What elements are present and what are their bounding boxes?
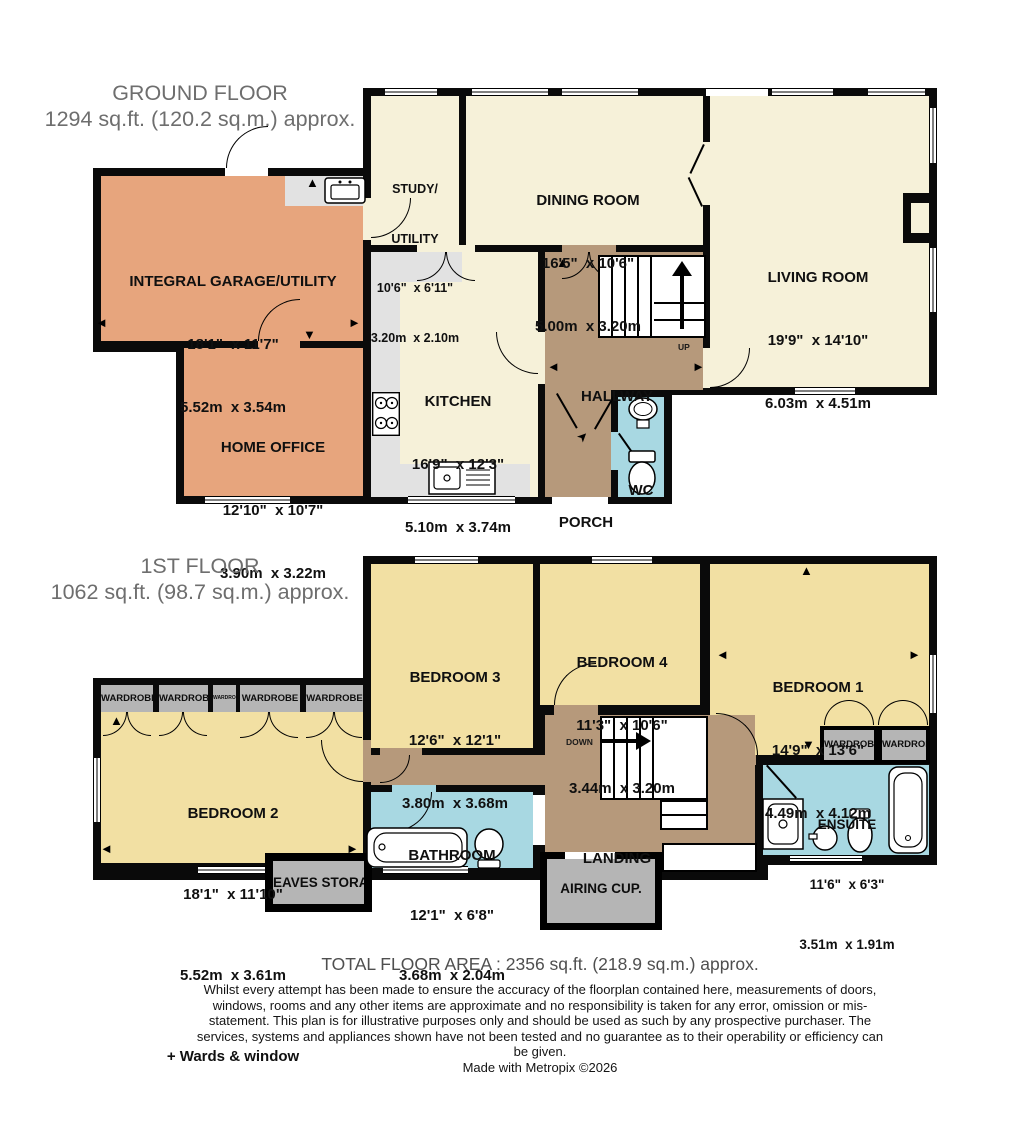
window <box>868 88 925 96</box>
door-arc <box>321 740 363 782</box>
wardrobe-door-arc <box>903 700 928 725</box>
floorplan-page: { "ground_floor": { "title": "GROUND FLO… <box>0 0 1026 1080</box>
room-name: STUDY/ <box>371 181 459 198</box>
door-leaf <box>766 765 797 799</box>
bedroom1-label: BEDROOM 1 14'9" x 13'6" 4.49m x 4.12m <box>765 635 871 866</box>
room-name: BEDROOM 1 <box>765 677 871 698</box>
room-name: HALLWAY <box>581 386 653 407</box>
door-opening <box>533 795 545 845</box>
wall <box>363 556 545 880</box>
wardrobe-door-arc <box>127 712 151 736</box>
ground-floor-title: GROUND FLOOR 1294 sq.ft. (120.2 sq.m.) a… <box>30 80 370 132</box>
room-dim-metric: 3.80m x 3.68m <box>402 793 508 814</box>
room-dim-imperial: 11'3" x 10'6" <box>569 715 675 736</box>
study-label: STUDY/ UTILITY 10'6" x 6'11" 3.20m x 2.1… <box>371 148 459 379</box>
room-name: BEDROOM 4 <box>569 652 675 673</box>
room-landing <box>545 715 755 863</box>
floor-title: GROUND FLOOR <box>30 80 370 106</box>
room-dim-metric: 3.20m x 2.10m <box>371 330 459 347</box>
wall <box>93 678 371 880</box>
wall <box>707 556 937 865</box>
window <box>93 758 101 822</box>
disclaimer: Whilst every attempt has been made to en… <box>188 982 892 1076</box>
window <box>383 866 468 874</box>
wardrobe-label: WARDROBE <box>824 731 874 759</box>
window <box>790 855 862 862</box>
up-label: UP <box>678 342 690 352</box>
opening <box>706 88 768 96</box>
floor-area: 1294 sq.ft. (120.2 sq.m.) approx. <box>30 106 370 132</box>
door-arc <box>226 126 268 168</box>
room-bathroom <box>371 792 533 868</box>
down-label: DOWN <box>566 737 593 747</box>
window <box>772 88 833 96</box>
bath-icon <box>888 766 928 854</box>
direction-marker: ▲ <box>306 176 319 189</box>
home-office-label: HOME OFFICE 12'10" x 10'7" 3.90m x 3.22m <box>220 395 326 626</box>
room-bedroom3 <box>371 564 533 748</box>
eaves-storage-label: EAVES STORAGE <box>273 861 364 904</box>
airing-cupboard-box <box>540 852 662 930</box>
window <box>929 108 937 163</box>
bedroom4-label: BEDROOM 4 11'3" x 10'6" 3.44m x 3.20m <box>569 610 675 841</box>
landing-label: LANDING <box>583 806 651 911</box>
room-dim-imperial: 12'10" x 10'7" <box>220 500 326 521</box>
wardrobe-door-arc <box>334 712 362 738</box>
direction-marker: ▲ <box>800 564 813 577</box>
stair-treads <box>602 718 660 798</box>
room-dim-imperial: 16'9" x 12'3" <box>405 454 511 475</box>
bedroom3-label: BEDROOM 3 12'6" x 12'1" 3.80m x 3.68m <box>402 625 508 856</box>
room-dim-imperial: 12'6" x 12'1" <box>402 730 508 751</box>
hallway-label: HALLWAY <box>581 344 653 449</box>
wardrobe-door-arc <box>849 700 874 725</box>
room-dim-metric: 4.49m x 4.12m <box>765 803 871 824</box>
door-arc <box>554 663 596 705</box>
room-bedroom4 <box>540 564 700 705</box>
stair-arrow-head <box>672 261 692 276</box>
room-dim-metric: 3.51m x 1.91m <box>799 935 894 955</box>
stair-landing <box>654 302 704 336</box>
direction-marker: ◄ <box>716 648 729 661</box>
sink-icon <box>808 820 840 854</box>
wardrobe-box <box>878 726 930 764</box>
stair-arrow-stem <box>602 739 636 743</box>
sink-icon <box>324 177 366 204</box>
wardrobe-label: WARDROBE <box>159 685 208 712</box>
wardrobe-divider <box>208 685 213 712</box>
room-dim-imperial: 14'9" x 13'6" <box>765 740 871 761</box>
wc-label: WC <box>629 438 654 543</box>
room-name: LANDING <box>583 848 651 869</box>
door-opening <box>380 748 422 755</box>
ground-floor-plan: GROUND FLOOR 1294 sq.ft. (120.2 sq.m.) a… <box>0 0 1026 540</box>
eaves-storage-box <box>265 853 372 912</box>
total-floor-area: TOTAL FLOOR AREA : 2356 sq.ft. (218.9 sq… <box>54 954 1026 975</box>
stair-arrow-stem <box>680 273 684 329</box>
disclaimer-text: Whilst every attempt has been made to en… <box>188 982 892 1060</box>
room-name: PORCH <box>559 512 613 533</box>
door-opening <box>363 198 371 240</box>
toilet-icon <box>844 808 876 854</box>
wall <box>540 556 768 880</box>
door-opening <box>703 142 710 205</box>
room-name: DINING ROOM <box>535 190 641 211</box>
door-opening <box>554 705 598 715</box>
room-dim-metric: 3.90m x 3.22m <box>220 563 326 584</box>
wardrobe-strip <box>101 685 363 712</box>
room-name: LIVING ROOM <box>765 267 871 288</box>
fireplace-recess <box>911 203 929 233</box>
room-name: HOME OFFICE <box>220 437 326 458</box>
living-label: LIVING ROOM 19'9" x 14'10" 6.03m x 4.51m <box>765 225 871 456</box>
direction-marker: ▲ <box>110 714 123 727</box>
room-dim-metric: 3.44m x 3.20m <box>569 778 675 799</box>
wardrobe-divider <box>153 685 159 712</box>
door-arc <box>380 755 410 783</box>
wardrobe-door-arc <box>103 712 127 736</box>
room-name: BATHROOM <box>399 846 505 866</box>
airing-door-opening <box>565 852 615 859</box>
direction-marker: ▼ <box>802 738 815 751</box>
hob-icon <box>372 392 400 436</box>
room-bedroom1 <box>710 564 929 755</box>
window <box>198 866 268 874</box>
wardrobe-door-arc <box>306 712 334 738</box>
wardrobe-label: WARDROBE <box>882 731 926 759</box>
corridor <box>371 755 545 785</box>
room-dim-imperial: 18'1" x 11'10" <box>167 881 299 908</box>
direction-marker: ► <box>346 842 359 855</box>
room-dim-imperial: 10'6" x 6'11" <box>371 280 459 297</box>
wardrobe-door-arc <box>240 712 269 738</box>
wardrobe-box <box>820 726 878 764</box>
room-dim-imperial: 11'6" x 6'3" <box>799 875 894 895</box>
room-dim-imperial: 19'9" x 14'10" <box>765 330 871 351</box>
stairwell-box <box>662 843 757 872</box>
wardrobe-door-arc <box>824 700 849 725</box>
bath-icon <box>366 827 468 868</box>
room-name: WC <box>629 480 654 501</box>
stairs-lower <box>660 800 708 830</box>
airing-cupboard-label: AIRING CUP. <box>548 859 654 919</box>
door-arc <box>716 713 758 755</box>
window <box>929 248 937 312</box>
direction-marker: ► <box>908 648 921 661</box>
wardrobe-label: WARDROBE <box>213 685 236 712</box>
door-opening <box>363 740 371 782</box>
wardrobe-label: WARDROBE <box>306 685 363 712</box>
wardrobe-door-arc <box>269 712 298 738</box>
room-dim-imperial: 16'5" x 10'6" <box>535 253 641 274</box>
wardrobe-door-arc <box>183 712 207 736</box>
room-name: BEDROOM 3 <box>402 667 508 688</box>
stair-arrow-head <box>636 732 651 750</box>
direction-marker: ► <box>348 316 361 329</box>
garage-door-opening <box>225 168 268 176</box>
direction-marker: ◄ <box>95 316 108 329</box>
door-opening <box>392 785 436 792</box>
shower-icon <box>762 798 804 850</box>
window <box>562 88 638 96</box>
room-ensuite <box>763 765 929 855</box>
room-dim-metric: 6.03m x 4.51m <box>765 393 871 414</box>
room-name: INTEGRAL GARAGE/UTILITY <box>129 271 336 292</box>
room-bedroom2 <box>101 712 363 863</box>
wardrobe-label: WARDROBE <box>101 685 153 712</box>
room-dim-imperial: 18'1" x 11'7" <box>129 334 336 355</box>
room-name: KITCHEN <box>405 391 511 412</box>
room-dim-metric: 5.00m x 3.20m <box>535 316 641 337</box>
wardrobe-label: WARDROBE <box>240 685 300 712</box>
toilet-icon <box>470 827 508 869</box>
wardrobe-divider <box>236 685 240 712</box>
room-dim-imperial: 12'1" x 6'8" <box>399 906 505 926</box>
room-name: BEDROOM 2 <box>167 800 299 827</box>
porch-label: PORCH <box>559 470 613 575</box>
door-opening <box>716 755 756 765</box>
room-dim-metric: 5.10m x 3.74m <box>405 517 511 538</box>
direction-marker: ◄ <box>100 842 113 855</box>
wardrobe-divider <box>300 685 306 712</box>
direction-marker: ► <box>692 360 705 373</box>
window <box>929 655 937 713</box>
kitchen-label: KITCHEN 16'9" x 12'3" 5.10m x 3.74m <box>405 349 511 580</box>
wall <box>363 556 937 772</box>
window <box>385 88 437 96</box>
wardrobe-door-arc <box>159 712 183 736</box>
room-name: UTILITY <box>371 231 459 248</box>
room-name: ENSUITE <box>799 815 894 835</box>
wardrobe-door-arc <box>878 700 903 725</box>
credit-line: Made with Metropix ©2026 <box>188 1060 892 1076</box>
window <box>472 88 548 96</box>
stairs-down <box>600 716 708 800</box>
door-arc <box>392 792 432 832</box>
